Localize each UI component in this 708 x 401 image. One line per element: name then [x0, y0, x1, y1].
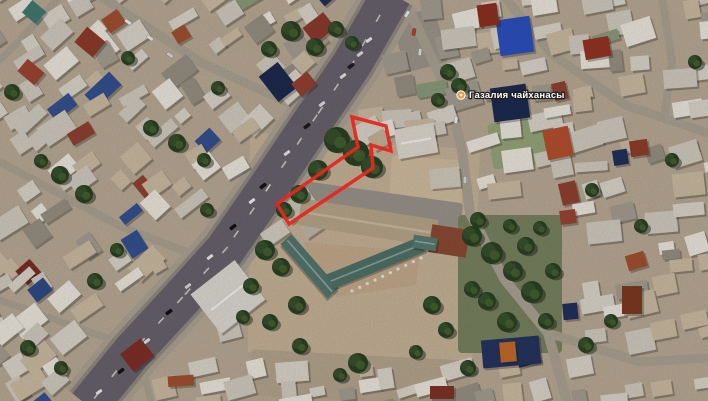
photo-grain: [0, 0, 708, 401]
map-canvas[interactable]: Газалия чайханасы: [0, 0, 708, 401]
poi-marker[interactable]: Газалия чайханасы: [457, 90, 565, 101]
poi-label[interactable]: Газалия чайханасы: [469, 90, 565, 101]
satellite-image: Газалия чайханасы: [0, 0, 708, 401]
